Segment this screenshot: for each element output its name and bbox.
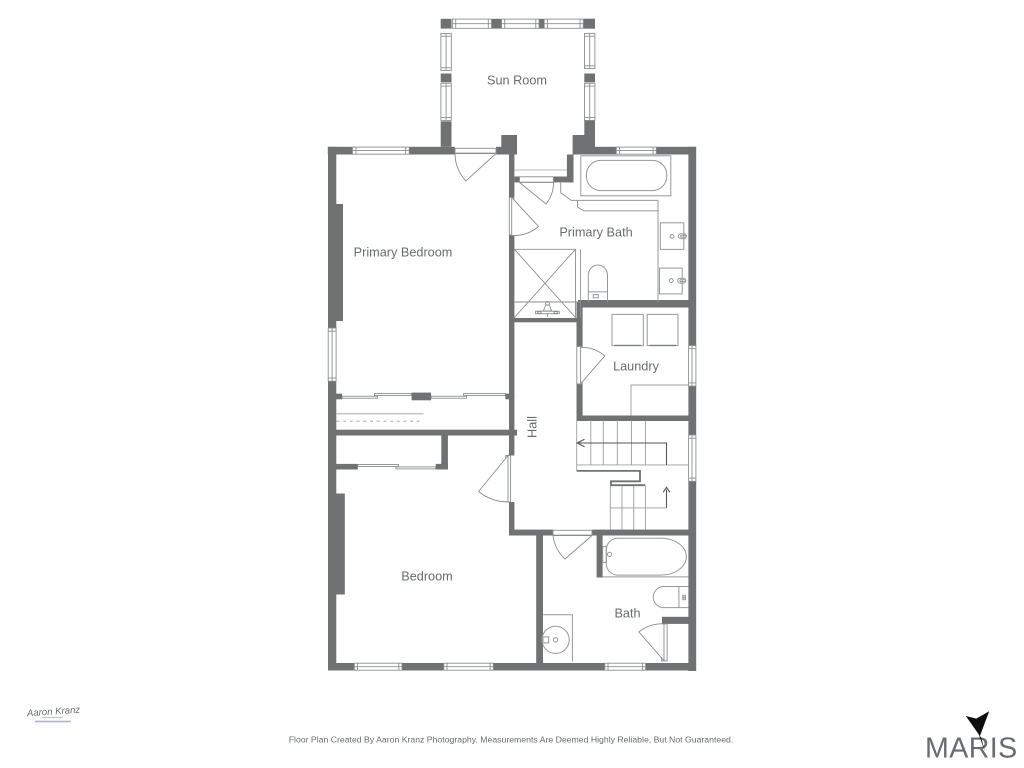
svg-text:MARIS: MARIS <box>925 733 1018 765</box>
svg-text:Hall: Hall <box>526 416 540 438</box>
svg-text:Primary Bath: Primary Bath <box>559 226 632 240</box>
svg-text:Bath: Bath <box>614 607 640 621</box>
svg-text:Laundry: Laundry <box>613 360 660 374</box>
svg-text:Bedroom: Bedroom <box>401 570 452 584</box>
svg-text:Sun Room: Sun Room <box>487 74 547 88</box>
svg-text:Floor Plan Created By Aaron Kr: Floor Plan Created By Aaron Kranz Photog… <box>289 735 734 745</box>
svg-text:Primary Bedroom: Primary Bedroom <box>354 246 453 260</box>
